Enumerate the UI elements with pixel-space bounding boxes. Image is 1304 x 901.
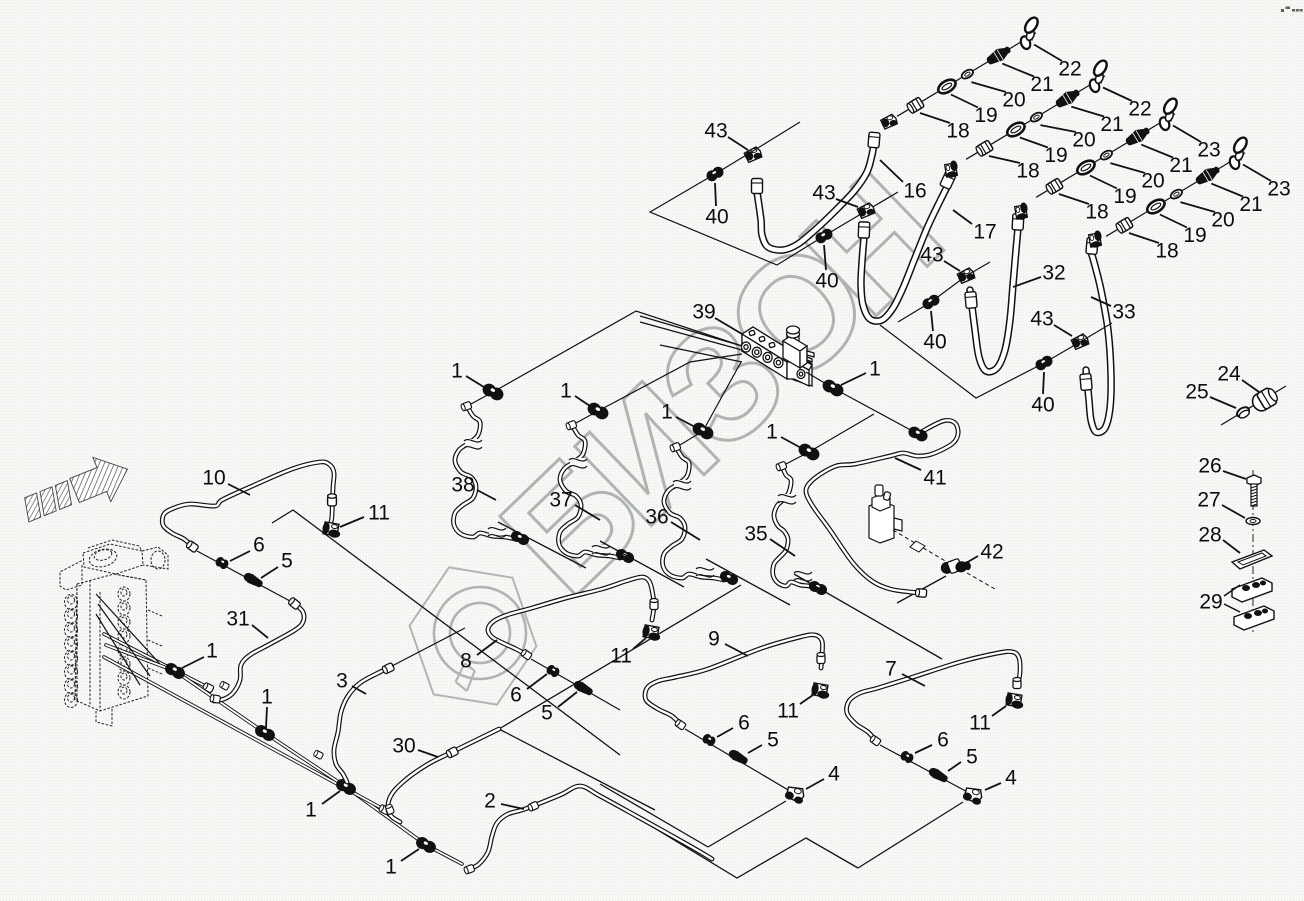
svg-text:31: 31 (226, 608, 249, 631)
svg-text:8: 8 (460, 650, 472, 673)
svg-text:11: 11 (969, 712, 991, 735)
svg-text:40: 40 (815, 270, 838, 293)
svg-text:40: 40 (705, 206, 728, 229)
svg-text:1: 1 (305, 799, 317, 822)
svg-text:3: 3 (336, 670, 348, 693)
svg-text:4: 4 (1005, 767, 1017, 790)
svg-text:5: 5 (281, 550, 293, 573)
svg-text:1: 1 (869, 358, 881, 381)
svg-text:1: 1 (661, 401, 673, 424)
svg-text:36: 36 (645, 506, 668, 529)
svg-text:1: 1 (385, 856, 397, 879)
svg-text:5: 5 (767, 729, 779, 752)
svg-text:11: 11 (777, 700, 799, 723)
svg-text:40: 40 (923, 331, 946, 354)
svg-text:5: 5 (966, 746, 978, 769)
svg-text:27: 27 (1197, 489, 1220, 512)
svg-text:30: 30 (392, 735, 415, 758)
svg-text:1: 1 (451, 360, 463, 383)
svg-text:6: 6 (738, 712, 750, 735)
svg-text:37: 37 (549, 489, 572, 512)
svg-text:1: 1 (560, 380, 572, 403)
svg-text:11: 11 (610, 645, 632, 668)
svg-text:6: 6 (253, 534, 265, 557)
svg-text:6: 6 (937, 729, 949, 752)
svg-text:32: 32 (1042, 262, 1065, 285)
svg-text:33: 33 (1112, 301, 1135, 324)
svg-text:6: 6 (510, 684, 522, 707)
svg-text:43: 43 (920, 244, 943, 267)
svg-text:17: 17 (973, 221, 996, 244)
svg-text:24: 24 (1217, 363, 1241, 386)
svg-text:43: 43 (1030, 308, 1053, 331)
svg-text:35: 35 (744, 523, 767, 546)
svg-text:26: 26 (1198, 455, 1221, 478)
svg-text:7: 7 (885, 658, 897, 681)
svg-text:5: 5 (541, 702, 553, 725)
svg-text:9: 9 (708, 628, 720, 651)
svg-text:43: 43 (812, 182, 835, 205)
svg-text:25: 25 (1185, 381, 1208, 404)
svg-text:29: 29 (1199, 591, 1222, 614)
svg-text:2: 2 (484, 790, 496, 813)
svg-text:11: 11 (368, 502, 390, 525)
svg-text:1: 1 (206, 640, 218, 663)
svg-text:28: 28 (1198, 524, 1221, 547)
svg-text:40: 40 (1031, 394, 1054, 417)
svg-text:42: 42 (980, 541, 1003, 564)
svg-text:1: 1 (766, 421, 778, 444)
svg-text:16: 16 (903, 180, 926, 203)
svg-text:43: 43 (704, 120, 727, 143)
svg-text:10: 10 (202, 467, 225, 490)
svg-text:39: 39 (692, 301, 715, 324)
svg-text:41: 41 (923, 467, 946, 490)
svg-text:4: 4 (828, 763, 840, 786)
svg-text:1: 1 (261, 686, 273, 709)
svg-text:38: 38 (451, 474, 474, 497)
